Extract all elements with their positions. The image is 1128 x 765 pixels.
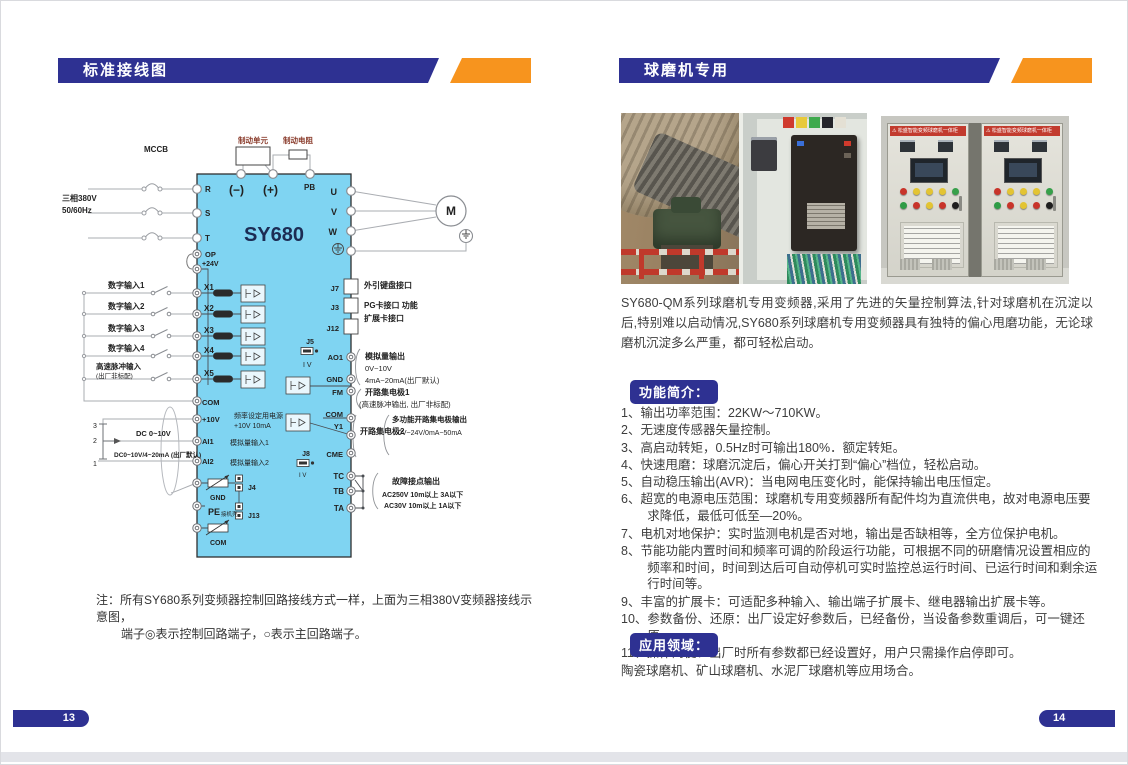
terminal-u: U xyxy=(331,187,338,197)
terminal-ai1: AI1 xyxy=(202,437,214,446)
dc-range-1: DC 0~10V xyxy=(136,429,171,438)
features-badge: 功能简介： xyxy=(630,380,718,404)
terminal-op: OP xyxy=(205,250,216,259)
page-number-right: 14 xyxy=(1039,710,1115,727)
indicator-buttons xyxy=(900,202,959,209)
feature-item: 9、丰富的扩展卡：可适配多种输入、输出端子扩展卡、继电器输出扩展卡等。 xyxy=(621,594,1101,611)
terminal-y1: Y1 xyxy=(334,422,343,431)
cabinet-banner: ⚠ 松盛智能变频球磨机一体柜 xyxy=(890,126,966,136)
terminal-x2: X2 xyxy=(204,304,214,313)
pot-pin-1: 1 xyxy=(93,461,97,468)
terminal-24v: +24V xyxy=(202,261,219,268)
indicator-buttons xyxy=(900,188,959,195)
fault-output-label: 故障接点输出 xyxy=(392,476,440,486)
j8-label: J8 xyxy=(302,451,310,458)
vent-grille xyxy=(900,259,920,270)
page-bottom-edge xyxy=(1,752,1127,762)
brake-circuit xyxy=(236,147,307,165)
brake-resistor-label: 制动电阻 xyxy=(283,135,313,145)
page-title: 标准接线图 xyxy=(58,58,439,83)
terminal-fm: FM xyxy=(332,388,343,397)
wiring-note: 注：所有SY680系列变频器控制回路接线方式一样，上面为三相380V变频器接线示… xyxy=(96,592,536,643)
feature-item: 3、高启动转矩，0.5Hz时可输出180%．额定转矩。 xyxy=(621,440,1101,457)
feature-item: 4、快速甩磨：球磨沉淀后，偏心开关打到“偏心”档位，轻松启动。 xyxy=(621,457,1101,474)
terminal-gnd-right: GND xyxy=(326,375,343,384)
terminal-v: V xyxy=(331,207,337,217)
terminal-com: COM xyxy=(202,398,220,407)
header-bar: 球磨机专用 xyxy=(619,58,1000,83)
j5-label: J5 xyxy=(306,339,314,346)
gnd-bottom-label: GND xyxy=(210,495,226,502)
feature-item: 8、节能功能内置时间和频率可调的阶段运行功能，可根据不同的研磨情况设置相应的频率… xyxy=(621,543,1101,593)
panel-meter xyxy=(1032,140,1047,152)
terminal-w: W xyxy=(329,227,338,237)
vent-grille xyxy=(932,259,952,270)
analog-output-range-2: 4mA~20mA(出厂默认) xyxy=(365,375,440,385)
brake-unit-label: 制动单元 xyxy=(238,135,268,145)
terminal-x4: X4 xyxy=(204,346,214,355)
motor xyxy=(436,196,473,243)
door-handle xyxy=(1053,196,1056,211)
hmi-display xyxy=(1004,158,1042,183)
phase-tags xyxy=(783,117,846,128)
cabinet-right: ⚠ 松盛智能变频球磨机一体柜 xyxy=(981,123,1063,277)
terminal-ai2: AI2 xyxy=(202,457,214,466)
open-collector-1-note: (高速脉冲输出, 出厂非标配) xyxy=(359,399,451,409)
note-line-2: 端子◎表示控制回路端子，○表示主回路端子。 xyxy=(96,626,536,643)
cabinet-gap xyxy=(969,123,981,277)
note-line-1: 所有SY680系列变频器控制回路接线方式一样，上面为三相380V变频器接线示意图… xyxy=(96,593,532,624)
photo-control-cabinets: ⚠ 松盛智能变频球磨机一体柜 ⚠ 松盛智能变频球磨机一体柜 xyxy=(881,116,1069,284)
vfd-keypad xyxy=(844,153,851,158)
terminal-t: T xyxy=(205,234,210,243)
terminal-com-right: COM xyxy=(326,410,344,419)
terminal-ao1: AO1 xyxy=(328,353,343,362)
cabinet-banner: ⚠ 松盛智能变频球磨机一体柜 xyxy=(984,126,1060,136)
analog-input-1-label: 模拟量输入1 xyxy=(230,438,269,447)
digital-input-3-label: 数字输入3 xyxy=(108,323,145,333)
left-section-header: 标准接线图 xyxy=(58,58,531,83)
multi-oc-range: 0V~24V/0mA~50mA xyxy=(398,430,462,437)
pulse-input-note: (出厂非标配) xyxy=(96,371,133,380)
model-name: SY680 xyxy=(244,224,304,246)
j4-label: J4 xyxy=(248,485,256,492)
analog-input-2-label: 模拟量输入2 xyxy=(230,458,269,467)
fault-output-spec-1: AC250V 10m以上 3A以下 xyxy=(382,490,463,499)
analog-output-range-1: 0V~10V xyxy=(365,364,392,373)
vfd-led-blue xyxy=(797,141,804,146)
pe-sub-label: 接机壳 xyxy=(221,510,238,518)
vfd-nameplate xyxy=(805,201,847,231)
digital-input-2-label: 数字输入2 xyxy=(108,301,145,311)
terminal-tb: TB xyxy=(333,487,344,496)
pulse-input-label: 高速脉冲输入 xyxy=(96,361,141,371)
terminal-x5: X5 xyxy=(204,369,214,378)
motor-label: M xyxy=(446,204,456,218)
application-badge: 应用领域： xyxy=(630,633,718,657)
rail-post xyxy=(639,249,644,279)
header-accent xyxy=(450,58,531,83)
terminal-plus: (+) xyxy=(263,183,278,197)
terminal-minus: (−) xyxy=(229,183,244,197)
pg-card-label: PG卡接口 功能 xyxy=(364,300,418,310)
vent-grille xyxy=(1026,259,1046,270)
supply-voltage: 三相380V xyxy=(62,193,97,203)
vfd-led-red xyxy=(844,141,851,146)
feature-item: 5、自动稳压输出(AVR)：当电网电压变化时，能保持输出电压恒定。 xyxy=(621,474,1101,491)
j8-iv-label: I V xyxy=(299,473,306,479)
freq-supply-spec: +10V 10mA xyxy=(234,423,271,430)
page-title: 球磨机专用 xyxy=(619,58,1000,83)
mccb-label: MCCB xyxy=(144,145,168,154)
intro-paragraph: SY680-QM系列球磨机专用变频器,采用了先进的矢量控制算法,针对球磨机在沉淀… xyxy=(621,293,1093,353)
pot-pin-2: 2 xyxy=(93,438,97,445)
indicator-buttons xyxy=(994,188,1053,195)
output-cables xyxy=(787,254,861,284)
panel-meter xyxy=(938,140,953,152)
application-text: 陶瓷球磨机、矿山球磨机、水泥厂球磨机等应用场合。 xyxy=(621,660,1091,679)
feature-item: 1、输出功率范围：22KW～710KW。 xyxy=(621,405,1101,422)
digital-input-4-label: 数字输入4 xyxy=(108,343,145,353)
pot-pin-3: 3 xyxy=(93,423,97,430)
header-accent xyxy=(1011,58,1092,83)
panel-meter xyxy=(994,140,1009,152)
indicator-buttons xyxy=(994,202,1053,209)
terminal-tc: TC xyxy=(333,472,344,481)
expansion-card-label: 扩展卡接口 xyxy=(364,313,404,323)
multi-oc-label: 多功能开路集电极输出 xyxy=(392,414,467,424)
freq-supply-label: 频率设定用电源 xyxy=(234,411,283,420)
j3-label: J3 xyxy=(331,303,339,312)
manual-spread: 标准接线图 xyxy=(0,0,1128,765)
open-cabinet xyxy=(739,113,867,284)
feature-item: 2、无速度传感器矢量控制。 xyxy=(621,422,1101,439)
analog-output-label: 模拟量输出 xyxy=(365,351,405,361)
open-collector-1-label: 开路集电极1 xyxy=(365,387,410,397)
fault-output-spec-2: AC30V 10m以上 1A以下 xyxy=(384,501,461,510)
features-list: 1、输出功率范围：22KW～710KW。 2、无速度传感器矢量控制。 3、高启动… xyxy=(621,405,1101,662)
feature-item: 6、超宽的电源电压范围：球磨机专用变频器所有配件均为直流供电，故对电源电压要求降… xyxy=(621,491,1101,525)
j5-iv-label: I V xyxy=(303,362,312,369)
j7-label: J7 xyxy=(331,284,339,293)
terminal-s: S xyxy=(205,209,211,218)
panel-meter xyxy=(900,140,915,152)
terminal-x1: X1 xyxy=(204,283,214,292)
header-bar: 标准接线图 xyxy=(58,58,439,83)
dc-range-2: DC0~10V/4~20mA (出厂默认) xyxy=(114,450,201,459)
j12-label: J12 xyxy=(326,324,339,333)
terminal-cme: CME xyxy=(326,450,343,459)
mill-motor xyxy=(653,209,721,249)
terminal-x3: X3 xyxy=(204,326,214,335)
hmi-display xyxy=(910,158,948,183)
right-section-header: 球磨机专用 xyxy=(619,58,1092,83)
mccb-breakers xyxy=(142,184,162,240)
j13-label: J13 xyxy=(248,513,260,520)
photo-ball-mill-site xyxy=(621,113,867,284)
circuit-breaker xyxy=(751,137,777,171)
terminal-r: R xyxy=(205,185,211,194)
wiring-diagram: 制动单元 制动电阻 (−) (+) PB MCCB 三相380V 50/60Hz… xyxy=(58,119,528,571)
rail-post xyxy=(699,249,704,279)
terminal-10v: +10V xyxy=(202,415,220,424)
cabinet-left: ⚠ 松盛智能变频球磨机一体柜 xyxy=(887,123,969,277)
com-bottom-label: COM xyxy=(210,540,227,547)
feature-item: 7、电机对地保护：实时监测电机是否对地，输出是否缺相等，全方位保护电机。 xyxy=(621,526,1101,543)
pe-label: PE xyxy=(208,507,220,517)
vfd-unit xyxy=(791,135,857,251)
door-handle xyxy=(959,196,962,211)
digital-input-1-label: 数字输入1 xyxy=(108,280,145,290)
terminal-ta: TA xyxy=(334,504,344,513)
interface-connectors xyxy=(344,279,358,334)
terminal-pb: PB xyxy=(304,183,315,192)
vent-grille xyxy=(994,259,1014,270)
op-24v-link xyxy=(187,254,192,269)
page-number-left: 13 xyxy=(13,710,89,727)
note-label: 注： xyxy=(96,593,120,607)
supply-frequency: 50/60Hz xyxy=(62,206,92,215)
keypad-port-label: 外引键盘接口 xyxy=(364,280,412,290)
